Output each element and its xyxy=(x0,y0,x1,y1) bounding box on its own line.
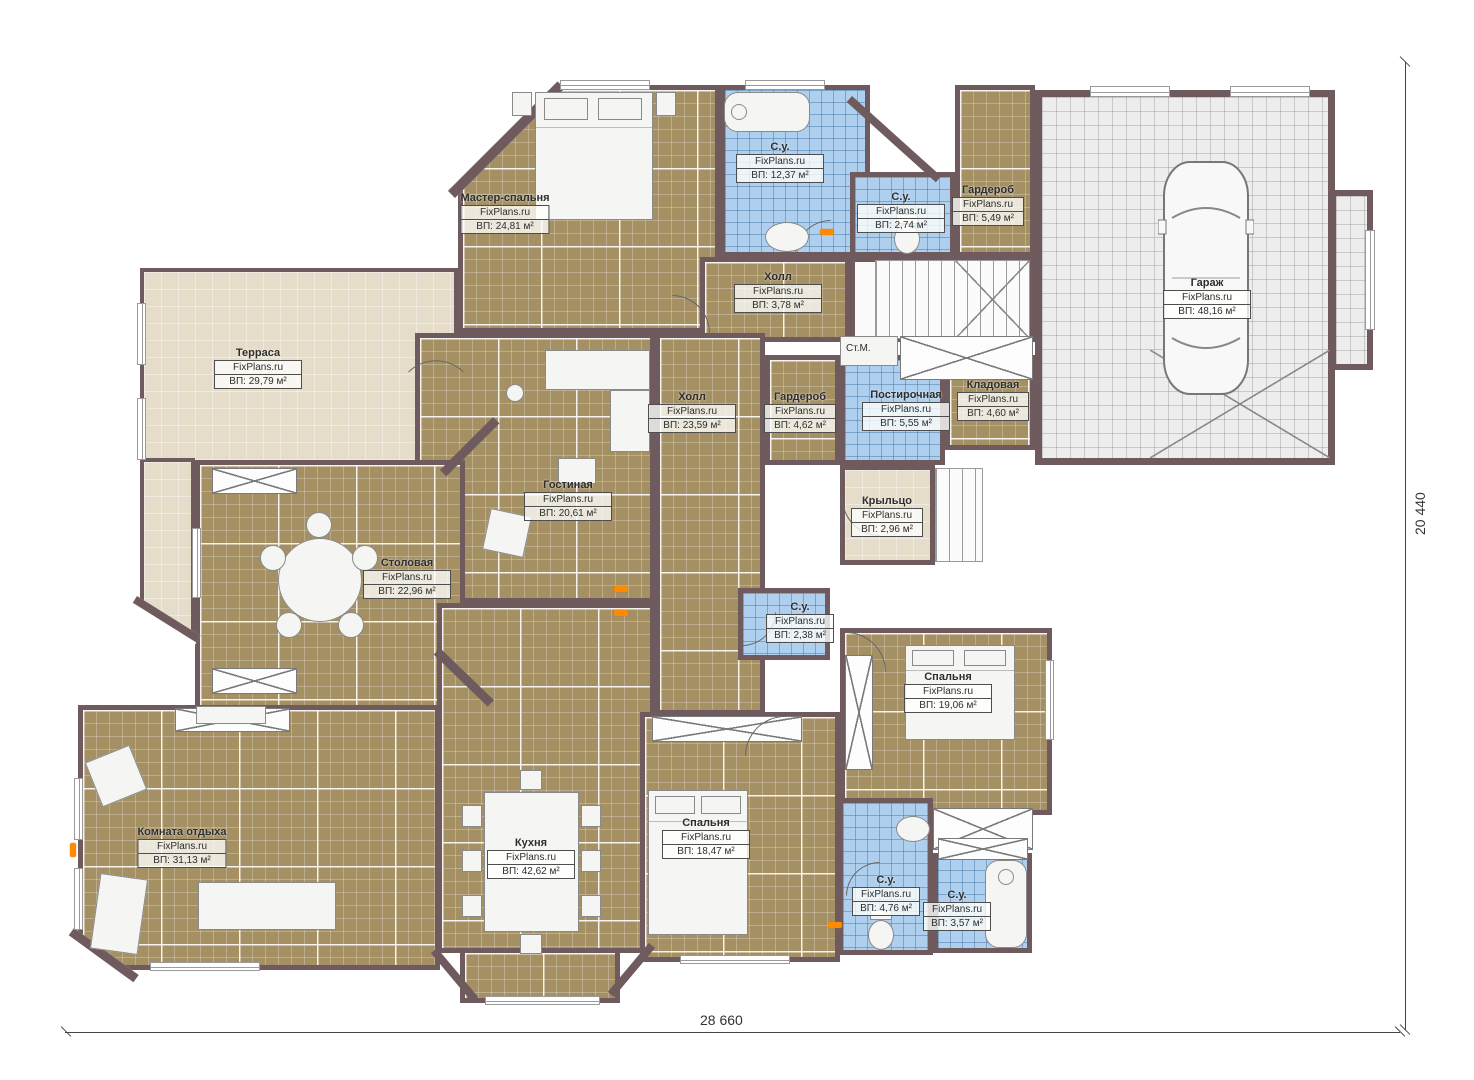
chair xyxy=(338,612,364,638)
dimension-height-text: 20 440 xyxy=(1412,492,1428,535)
room-label-wardrobe-mid: Гардероб FixPlans.ruВП: 4,62 м² xyxy=(764,391,836,433)
closet-bedroom-right xyxy=(845,655,873,770)
washing-machine-label: Ст.М. xyxy=(846,343,871,354)
radiator-marker xyxy=(70,843,76,857)
sofa xyxy=(610,390,650,452)
room-label-storage: Кладовая FixPlans.ruВП: 4,60 м² xyxy=(957,379,1029,421)
room-wardrobe-top xyxy=(955,85,1035,257)
closet-bath-br xyxy=(938,838,1028,860)
chair xyxy=(260,545,286,571)
room-label-laundry: Постирочная FixPlans.ruВП: 5,55 м² xyxy=(862,389,950,431)
room-label-porch: Крыльцо FixPlans.ruВП: 2,96 м² xyxy=(851,495,923,537)
window xyxy=(485,996,600,1005)
room-name: Мастер-спальня xyxy=(460,192,549,204)
closet-hall xyxy=(900,336,1033,380)
chair xyxy=(462,850,482,872)
window xyxy=(680,955,790,964)
chair xyxy=(520,770,542,790)
room-label-bedroom-right: Спальня FixPlans.ruВП: 19,06 м² xyxy=(904,671,992,713)
chair xyxy=(581,805,601,827)
room-label-master-bedroom: Мастер-спальня FixPlans.ruВП: 24,81 м² xyxy=(460,192,549,234)
chair xyxy=(520,934,542,954)
closet-dining-top xyxy=(212,468,297,494)
toilet-bowl xyxy=(868,920,894,950)
room-label-hall-main: Холл FixPlans.ruВП: 23,59 м² xyxy=(648,391,736,433)
stairs-cross xyxy=(955,260,1030,339)
sofa xyxy=(198,882,336,930)
room-label-bedroom-bottom: Спальня FixPlans.ruВП: 18,47 м² xyxy=(662,817,750,859)
bed-master xyxy=(535,92,653,220)
room-area: ВП: 24,81 м² xyxy=(461,220,548,233)
room-label-bath-br2: С.у. FixPlans.ruВП: 3,57 м² xyxy=(923,889,991,931)
bed xyxy=(648,790,748,935)
room-label-terrace: Терраса FixPlans.ruВП: 29,79 м² xyxy=(214,347,302,389)
dimension-line-right xyxy=(1405,62,1406,1030)
dining-table xyxy=(278,538,362,622)
window xyxy=(560,80,650,90)
nightstand xyxy=(656,92,676,116)
sink xyxy=(896,816,930,842)
radiator-marker xyxy=(828,922,842,928)
plant xyxy=(506,384,524,402)
window xyxy=(137,398,146,460)
room-label-bath-mid: С.у. FixPlans.ruВП: 2,38 м² xyxy=(766,601,834,643)
window xyxy=(150,962,260,971)
room-label-lounge: Комната отдыха FixPlans.ruВП: 31,13 м² xyxy=(137,826,226,868)
window xyxy=(1090,86,1170,97)
bathtub xyxy=(724,92,810,132)
window xyxy=(745,80,825,90)
room-kitchen-bay xyxy=(460,948,620,1003)
room-label-dining: Столовая FixPlans.ruВП: 22,96 м² xyxy=(363,557,451,599)
chair xyxy=(581,895,601,917)
chair xyxy=(581,850,601,872)
window xyxy=(192,528,201,598)
radiator-marker xyxy=(614,610,628,616)
dimension-width-text: 28 660 xyxy=(700,1012,743,1028)
window xyxy=(1045,660,1054,740)
porch-steps xyxy=(935,468,983,562)
window xyxy=(74,868,83,930)
bathtub xyxy=(985,860,1027,948)
floor-plan: Мастер-спальня FixPlans.ruВП: 24,81 м² С… xyxy=(0,0,1474,1080)
sink xyxy=(765,222,809,252)
closet-dining-bottom xyxy=(212,668,297,694)
room-label-bath-top: С.у. FixPlans.ruВП: 12,37 м² xyxy=(736,141,824,183)
nightstand xyxy=(512,92,532,116)
radiator-marker xyxy=(614,586,628,592)
chair xyxy=(462,805,482,827)
room-label-garage: Гараж FixPlans.ruВП: 48,16 м² xyxy=(1163,277,1251,319)
side-table xyxy=(196,706,266,724)
window xyxy=(1230,86,1310,97)
room-label-bath-br1: С.у. FixPlans.ruВП: 4,76 м² xyxy=(852,874,920,916)
watermark: FixPlans.ru xyxy=(461,206,548,220)
room-label-bath-stairs: С.у. FixPlans.ruВП: 2,74 м² xyxy=(857,191,945,233)
radiator-marker xyxy=(820,229,834,235)
room-label-wardrobe-top: Гардероб FixPlans.ruВП: 5,49 м² xyxy=(952,184,1024,226)
window xyxy=(74,778,83,840)
window xyxy=(137,303,146,365)
sofa xyxy=(545,350,650,390)
room-label-kitchen: Кухня FixPlans.ruВП: 42,62 м² xyxy=(487,837,575,879)
room-label-hall-top: Холл FixPlans.ruВП: 3,78 м² xyxy=(734,271,822,313)
chair xyxy=(276,612,302,638)
chair xyxy=(462,895,482,917)
room-label-living: Гостиная FixPlans.ruВП: 20,61 м² xyxy=(524,479,612,521)
window xyxy=(1365,230,1375,330)
dimension-line-bottom xyxy=(65,1032,1400,1033)
chair xyxy=(306,512,332,538)
